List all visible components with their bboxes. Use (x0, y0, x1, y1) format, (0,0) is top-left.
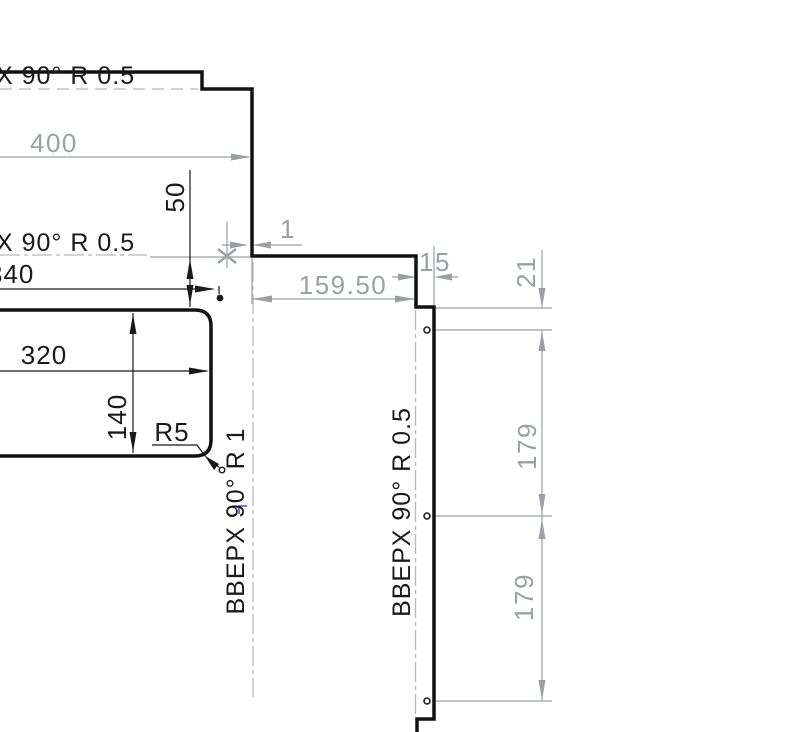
arrow-right (230, 242, 248, 249)
top-and-right-flange-edge (0, 72, 434, 732)
arrow-right (398, 274, 416, 281)
bend-annotation-left-vertical: BBEPX 90° R 1 (222, 428, 250, 615)
arrow-right (231, 154, 251, 161)
arrow-right (195, 286, 215, 293)
part-outline (0, 72, 434, 732)
dim-140-text: 140 (102, 394, 132, 440)
flange-holes (424, 327, 430, 704)
dim-15-text: 15 (419, 247, 451, 277)
dim-r5-text: R5 (154, 417, 189, 447)
arrow-up (130, 314, 137, 334)
dim-340-text: 340 (0, 259, 34, 289)
hole-bottom (424, 698, 430, 704)
arrow-down (539, 494, 546, 514)
arrow-down (187, 285, 194, 305)
arrow-right (395, 296, 415, 303)
bend-annotation-mid: X 90° R 0.5 (0, 229, 135, 257)
arrow-up (539, 519, 546, 539)
dim-endpoint-dot (217, 295, 224, 302)
arrow-down (539, 680, 546, 700)
arrow-up (539, 331, 546, 351)
arrow-up (187, 259, 194, 279)
arrow-left (252, 296, 272, 303)
dim-400-text: 400 (30, 128, 78, 158)
bend-annotation-right-vertical: BBEPX 90° R 0.5 (388, 407, 416, 617)
dim-50-text: 50 (160, 182, 190, 213)
dim-179-top-text: 179 (512, 422, 542, 470)
dim-179-bottom-text: 179 (509, 573, 539, 621)
drawing-canvas[interactable]: X 90° R 0.5 X 90° R 0.5 400 50 340 1 159… (0, 0, 790, 732)
dim-1-text: 1 (280, 214, 296, 244)
arrow-down (539, 288, 546, 308)
hole-top (424, 327, 430, 333)
arrow-right (189, 368, 209, 375)
dimension-texts: X 90° R 0.5 X 90° R 0.5 400 50 340 1 159… (0, 62, 542, 621)
dim-320-text: 320 (21, 340, 67, 370)
hole-middle (424, 513, 430, 519)
bend-annotation-top: X 90° R 0.5 (0, 62, 135, 90)
dim-21-text: 21 (511, 256, 541, 288)
bend-lines (0, 89, 416, 716)
dim-159-50-text: 159.50 (299, 270, 388, 300)
